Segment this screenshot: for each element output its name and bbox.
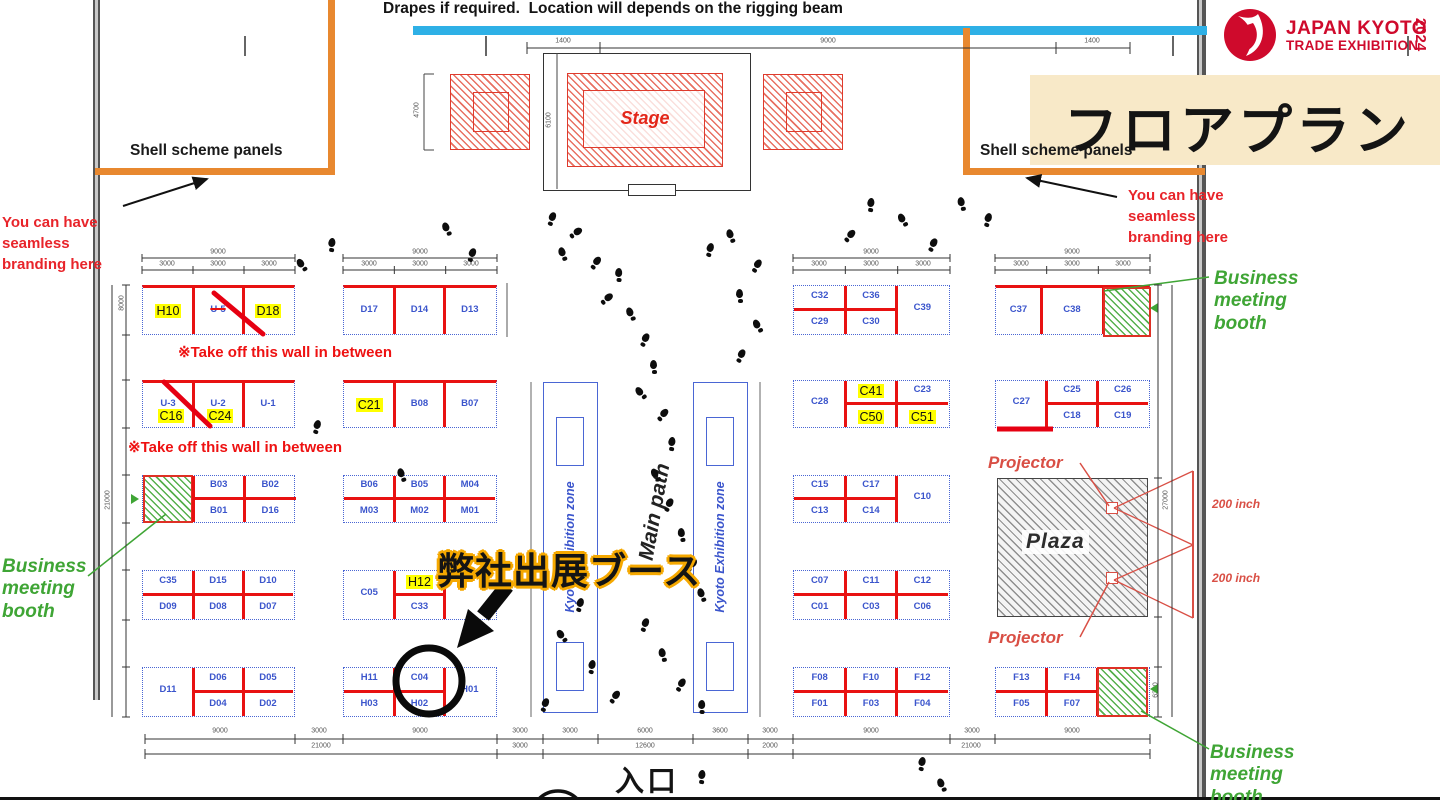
booth-block-b11: C15C13C17C14C10 (793, 475, 950, 523)
dimension-label: 3000 (512, 728, 528, 735)
projector-icon-bottom (1106, 572, 1118, 584)
booth-cell-C25: C25 (1047, 384, 1098, 395)
branding-arrow-right (1027, 178, 1117, 197)
booth-cell-D16: D16 (245, 505, 297, 516)
footprint-icon (750, 258, 765, 274)
booth-cell-F05: F05 (996, 698, 1047, 709)
booth-cell-U-1: U-1 (243, 398, 293, 409)
booth-cell-B03: B03 (193, 479, 245, 490)
dimension-label: 3000 (210, 261, 226, 268)
booth-cell-F01: F01 (794, 698, 845, 709)
booth-cell-D09: D09 (143, 601, 193, 612)
booth-cell-M02: M02 (394, 505, 444, 516)
booth-cell-D06: D06 (193, 672, 243, 683)
shell-panel-bar-left-v (328, 0, 335, 172)
dimension-label: 9000 (820, 38, 836, 45)
booth-cell-B06: B06 (344, 479, 394, 490)
booth-cell-C37: C37 (996, 304, 1041, 315)
booth-cell-D14: D14 (394, 304, 444, 315)
business-meeting-booth-hatch (1103, 287, 1151, 337)
booth-cell-C36: C36 (845, 290, 896, 301)
booth-cell-H03: H03 (344, 698, 394, 709)
booth-cell-C17: C17 (845, 479, 896, 490)
footprint-icon (588, 255, 603, 271)
business-booth-note-left: Business meeting booth (2, 556, 86, 623)
footprint-icon (982, 212, 994, 228)
booth-cell-C24: C24 (200, 409, 240, 423)
footprint-icon (725, 228, 736, 244)
booth-cell-C39: C39 (897, 302, 948, 313)
dimension-label: 3600 (712, 728, 728, 735)
footprint-icon (625, 306, 637, 322)
footprint-icon (557, 246, 568, 262)
zone-rect (706, 417, 734, 466)
footprint-icon (866, 197, 876, 212)
zone-rect (706, 642, 734, 691)
dimension-label: 9000 (212, 728, 228, 735)
exhibition-logo-icon (1222, 6, 1278, 69)
booth-cell-D08: D08 (193, 601, 243, 612)
business-meeting-booth-hatch (143, 475, 193, 523)
dimension-label: 9000 (1064, 249, 1080, 256)
dimension-label: 3000 (863, 261, 879, 268)
booth-cell-C41: C41 (845, 384, 896, 398)
booth-block-b15: C07C01C11C03C12C06 (793, 570, 950, 620)
booth-cell-C03: C03 (845, 601, 896, 612)
screen-size-top: 200 inch (1212, 497, 1260, 511)
footprint-icon (545, 211, 558, 227)
footprint-icon (736, 289, 744, 303)
dimension-label: 21000 (311, 743, 330, 750)
booth-cell-C05: C05 (344, 587, 394, 598)
drape-bar (413, 26, 1207, 35)
footprint-icon (697, 769, 707, 784)
left-wall (93, 0, 100, 700)
business-booth-note-right-top: Business meeting booth (1214, 268, 1298, 335)
dimension-label: 6000 (637, 728, 653, 735)
booth-cell-C26: C26 (1097, 384, 1148, 395)
booth-cell-C51: C51 (897, 410, 948, 424)
dimension-label: 3000 (512, 743, 528, 750)
booth-cell-B07: B07 (445, 398, 495, 409)
booth-cell-C10: C10 (897, 491, 948, 502)
booth-cell-B02: B02 (245, 479, 297, 490)
footprint-icon (295, 257, 309, 273)
dimension-label: 1400 (555, 38, 571, 45)
dimension-label: 3000 (1064, 261, 1080, 268)
branding-arrow-left (123, 179, 207, 206)
footprint-icon (655, 407, 671, 423)
booth-block-b13: C35D09D15D08D10D07 (142, 570, 295, 620)
dimension-label: 9000 (863, 728, 879, 735)
booth-cell-H10: H10 (143, 304, 193, 318)
dimension-label: 27000 (1163, 490, 1170, 509)
booth-cell-C12: C12 (897, 575, 948, 586)
zone-rect (556, 642, 584, 691)
booth-cell-C27: C27 (996, 396, 1047, 407)
logo-year: 2024 (1412, 18, 1429, 51)
footprint-icon (926, 237, 940, 253)
dimension-label: 3000 (562, 728, 578, 735)
booth-block-b19: F13F05F14F07 (995, 667, 1150, 717)
booth-cell-U-5: U-5 (193, 304, 243, 315)
booth-cell-M04: M04 (445, 479, 495, 490)
booth-cell-H02: H02 (394, 698, 444, 709)
footprint-icon (599, 292, 615, 307)
booth-block-b7: C28C41C50C23C51 (793, 380, 950, 428)
dimension-label: 3000 (762, 728, 778, 735)
kyoto-zone-label-right: Kyoto Exhibition zone (713, 477, 727, 617)
booth-block-b16: D11D06D04D05D02 (142, 667, 295, 717)
stage-side-left (450, 74, 530, 150)
booth-cell-C14: C14 (845, 505, 896, 516)
stage-outer-rect (543, 53, 751, 191)
booth-cell-D10: D10 (243, 575, 293, 586)
dimension-label: 3000 (915, 261, 931, 268)
booth-cell-D07: D07 (243, 601, 293, 612)
footprint-icon (638, 617, 651, 633)
shell-panel-bar-right-v (963, 28, 970, 172)
dimension-label: 3000 (311, 728, 327, 735)
booth-cell-C23: C23 (897, 384, 948, 395)
footprint-icon (674, 677, 689, 693)
shell-scheme-label-left: Shell scheme panels (130, 142, 283, 160)
dimension-label: 8000 (119, 295, 126, 311)
dimension-label: 9000 (863, 249, 879, 256)
dimension-label: 6100 (546, 112, 553, 128)
footprint-icon (751, 318, 764, 334)
booth-block-b9: B03B01B02D16 (142, 475, 295, 523)
booth-cell-C13: C13 (794, 505, 845, 516)
projector-label-bottom: Projector (988, 628, 1063, 648)
booth-cell-C07: C07 (794, 575, 845, 586)
footprint-icon (896, 212, 909, 228)
dimension-label: 3000 (811, 261, 827, 268)
wall-note-1: ※Take off this wall in between (178, 343, 392, 361)
footprint-icon (441, 221, 453, 237)
footprint-icon (634, 385, 649, 401)
booth-cell-C35: C35 (143, 575, 193, 586)
dimension-label: 3000 (412, 261, 428, 268)
booth-cell-F10: F10 (845, 672, 896, 683)
footprint-icon (697, 700, 706, 715)
dimension-label: 3000 (361, 261, 377, 268)
booth-cell-C15: C15 (794, 479, 845, 490)
booth-cell-M03: M03 (344, 505, 394, 516)
dimension-label: 3000 (1115, 261, 1131, 268)
dimension-label: 21000 (961, 743, 980, 750)
booth-block-b1: H10U-5D18 (142, 285, 295, 335)
footprint-icon (568, 226, 584, 240)
booth-cell-C50: C50 (845, 410, 896, 424)
booth-block-b10: B06M03B05M02M04M01 (343, 475, 497, 523)
booth-cell-B01: B01 (193, 505, 245, 516)
booth-cell-F14: F14 (1047, 672, 1098, 683)
booth-cell-C21: C21 (344, 398, 394, 412)
footprint-icon (311, 419, 323, 435)
booth-cell-D13: D13 (445, 304, 495, 315)
booth-cell-D17: D17 (344, 304, 394, 315)
dimension-label: 3000 (964, 728, 980, 735)
booth-cell-D05: D05 (243, 672, 293, 683)
booth-block-b8: C27C25C18C26C19 (995, 380, 1150, 428)
booth-cell-C29: C29 (794, 316, 845, 327)
logo-text-line1: JAPAN KYOTO (1286, 18, 1427, 40)
green-marker-left (131, 494, 139, 504)
booth-cell-F08: F08 (794, 672, 845, 683)
stage-step (628, 184, 676, 196)
footprint-icon (658, 647, 668, 662)
dimension-label: 3000 (261, 261, 277, 268)
booth-cell-C32: C32 (794, 290, 845, 301)
booth-cell-F13: F13 (996, 672, 1047, 683)
booth-cell-D02: D02 (243, 698, 293, 709)
dimension-label: 9000 (412, 728, 428, 735)
booth-cell-C16: C16 (151, 409, 191, 423)
entrance-label: 入口 (615, 758, 679, 800)
floor-plan-canvas: Drapes if required. Location will depend… (0, 0, 1440, 800)
shell-panel-bar-left-h (95, 168, 335, 175)
footprint-icon (607, 689, 622, 705)
dimension-label: 3000 (1013, 261, 1029, 268)
booth-cell-C11: C11 (845, 575, 896, 586)
dimension-label: 9000 (210, 249, 226, 256)
dimension-label: 1400 (1084, 38, 1100, 45)
booth-cell-C30: C30 (845, 316, 896, 327)
booth-cell-D11: D11 (143, 684, 193, 695)
booth-cell-C04: C04 (394, 672, 444, 683)
stage-side-right (763, 74, 843, 150)
booth-cell-H01: H01 (445, 684, 495, 695)
booth-block-b6: C21B08B07 (343, 380, 497, 428)
our-booth-callout: 弊社出展ブース (437, 541, 701, 595)
plaza-label: Plaza (1022, 530, 1089, 554)
dimension-label: 21000 (105, 490, 112, 509)
booth-cell-M01: M01 (445, 505, 495, 516)
booth-cell-F12: F12 (897, 672, 948, 683)
booth-cell-H11: H11 (344, 672, 394, 683)
branding-note-left: You can have seamless branding here (2, 212, 102, 275)
footprint-icon (704, 242, 716, 258)
booth-cell-C06: C06 (897, 601, 948, 612)
drape-note: Drapes if required. Location will depend… (383, 0, 843, 18)
footprint-icon (327, 237, 337, 252)
dimension-label: 9000 (1064, 728, 1080, 735)
booth-cell-D04: D04 (193, 698, 243, 709)
footprint-icon (614, 268, 623, 283)
projector-label-top: Projector (988, 453, 1063, 473)
booth-cell-U-3: U-3 (143, 398, 193, 409)
logo-text-line2: TRADE EXHIBITION (1286, 38, 1418, 53)
booth-cell-C01: C01 (794, 601, 845, 612)
booth-block-b3: C32C29C36C30C39 (793, 285, 950, 335)
page-title: フロアプラン (1040, 86, 1436, 165)
booth-cell-F07: F07 (1047, 698, 1098, 709)
booth-block-b17: H11H03C04H02H01 (343, 667, 497, 717)
dimension-label: 4700 (414, 102, 421, 118)
booth-cell-D18: D18 (243, 304, 293, 318)
branding-note-right: You can have seamless branding here (1128, 185, 1228, 248)
footprint-icon (842, 228, 858, 244)
footprint-icon (667, 436, 677, 451)
booth-cell-D15: D15 (193, 575, 243, 586)
screen-size-bottom: 200 inch (1212, 571, 1260, 585)
dimension-label: 3000 (159, 261, 175, 268)
dimension-label: 9000 (412, 249, 428, 256)
dimension-label: 2000 (762, 743, 778, 750)
booth-block-b18: F08F01F10F03F12F04 (793, 667, 950, 717)
booth-block-b2: D17D14D13 (343, 285, 497, 335)
booth-cell-C38: C38 (1041, 304, 1103, 315)
booth-cell-C18: C18 (1047, 410, 1098, 421)
booth-cell-B08: B08 (394, 398, 444, 409)
business-booth-note-right-bottom: Business meeting booth (1210, 742, 1294, 800)
booth-cell-C28: C28 (794, 396, 845, 407)
booth-cell-C19: C19 (1097, 410, 1148, 421)
shell-panel-bar-right-h (963, 168, 1205, 175)
booth-cell-F04: F04 (897, 698, 948, 709)
footprint-icon (638, 332, 652, 348)
green-marker-right-bottom (1150, 684, 1158, 694)
booth-cell-C33: C33 (394, 601, 444, 612)
booth-block-b4: C37C38 (995, 285, 1150, 335)
booth-cell-F03: F03 (845, 698, 896, 709)
booth-block-b5: U-3U-2U-1C16C24 (142, 380, 295, 428)
green-marker-right-top (1150, 303, 1158, 313)
footprint-icon (916, 756, 927, 772)
projector-icon-top (1106, 502, 1118, 514)
business-meeting-booth-hatch (1097, 667, 1148, 717)
zone-rect (556, 417, 584, 466)
footprint-icon (936, 777, 948, 793)
wall-note-2: ※Take off this wall in between (128, 438, 342, 456)
footprint-icon (650, 360, 658, 374)
footprint-icon (957, 196, 967, 211)
footprint-icon (734, 348, 748, 364)
booth-cell-U-2: U-2 (193, 398, 243, 409)
dimension-label: 12600 (635, 743, 654, 750)
